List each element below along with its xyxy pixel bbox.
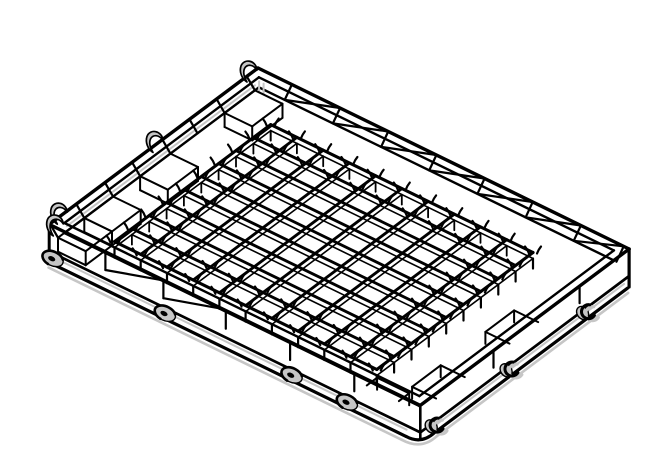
grid-prong: [263, 119, 267, 126]
wall-notch: [485, 332, 509, 344]
grid-prong: [124, 223, 128, 230]
compartment-box: [170, 154, 198, 167]
grid-prong: [193, 171, 197, 178]
grid-prong: [141, 210, 145, 217]
grid-prong: [176, 184, 180, 191]
compartment-box: [140, 176, 168, 190]
wall-notch: [514, 310, 538, 322]
compartment-box: [225, 113, 253, 126]
grid-prong: [107, 236, 111, 243]
compartment-box: [113, 197, 141, 211]
wall-notch: [441, 365, 465, 377]
grid-prong: [537, 247, 541, 254]
grid-prong: [511, 234, 515, 241]
grid-prong: [406, 183, 410, 190]
compartment-box: [225, 90, 255, 113]
grid-prong: [228, 145, 232, 152]
grid-prong: [485, 221, 489, 228]
grid-prong: [211, 158, 215, 165]
rim-edge-top-left: [49, 68, 258, 224]
tray-isometric-drawing: [0, 0, 671, 474]
grid-bar-bottom: [115, 131, 271, 248]
compartment-box: [140, 154, 170, 177]
grid-prong: [353, 157, 357, 164]
wall-notch: [412, 387, 436, 399]
grid-prong: [380, 170, 384, 177]
grid-prong: [432, 195, 436, 202]
compartment-box: [252, 104, 282, 127]
compartment-box: [84, 218, 112, 232]
technical-drawing-figure: [0, 0, 671, 474]
compartment-box: [140, 190, 168, 204]
grid-prong: [327, 144, 331, 151]
compartment-box: [84, 197, 113, 219]
grid-prong: [301, 131, 305, 138]
grid-prong: [458, 208, 462, 215]
base-shadow: [437, 293, 628, 436]
